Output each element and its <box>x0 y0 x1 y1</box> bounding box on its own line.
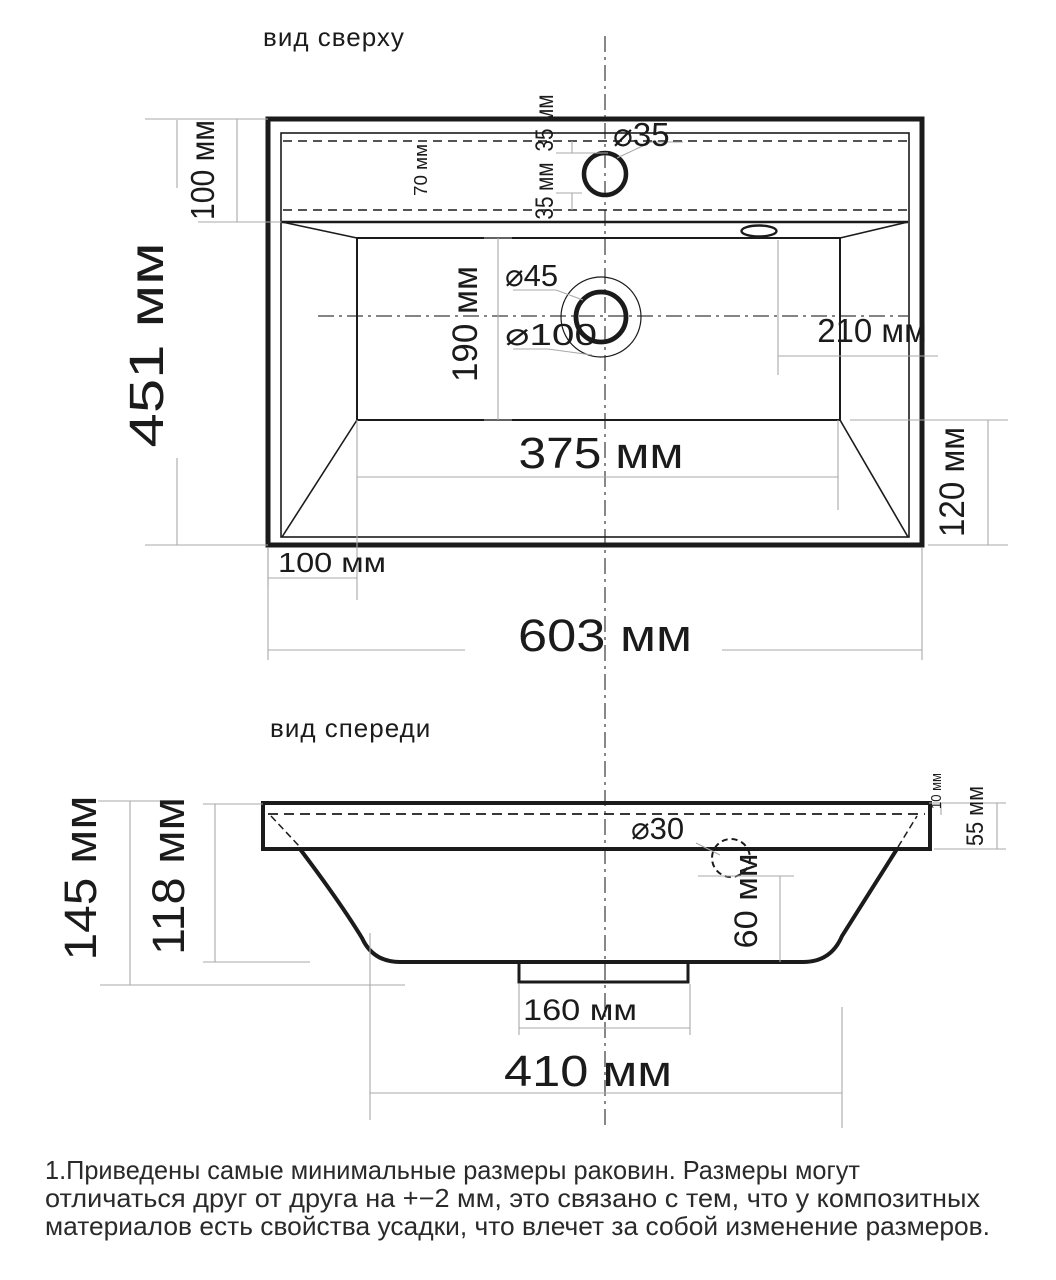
dim-label-overflow-to-bottom: 60 мм <box>728 854 764 949</box>
dim-label-faucet-hole-diameter: ⌀35 <box>613 116 670 153</box>
dim-label-front-corner-offset: 100 мм <box>278 547 386 578</box>
dim-label-overall-width: 603 мм <box>518 610 692 661</box>
dim-label-rim-top-thickness: 10 мм <box>928 773 945 809</box>
dim-label-ledge-inner-depth: 70 мм <box>411 144 431 196</box>
dim-label-back-ledge: 100 мм <box>184 120 221 220</box>
dim-label-side-slope-width: 120 мм <box>933 427 972 537</box>
footnote-line-1: 1.Приведены самые минимальные размеры ра… <box>45 1155 860 1185</box>
front-view-title: вид спереди <box>270 713 431 743</box>
dim-label-bowl-floor-depth: 190 мм <box>446 266 485 382</box>
dim-label-rim-height: 55 мм <box>962 786 989 846</box>
footnote-line-2: отличаться друг от друга на +−2 мм, это … <box>45 1183 980 1213</box>
dim-label-drain-side-offset: 210 мм <box>817 312 927 349</box>
sink-dimension-drawing: вид сверху <box>0 0 1056 1280</box>
drawing-canvas: вид сверху <box>0 0 1056 1280</box>
dim-label-overall-height: 145 мм <box>55 796 106 961</box>
dim-label-flange-width: 160 мм <box>523 994 637 1027</box>
dim-label-drain-recess-diameter: ⌀100 <box>505 317 597 352</box>
dim-label-bowl-height: 118 мм <box>143 797 194 955</box>
dim-label-faucet-offset-lower: 35 мм <box>531 163 559 220</box>
footnote-line-3: материалов есть свойства усадки, что вле… <box>45 1211 990 1241</box>
dim-label-overall-depth: 451 мм <box>121 243 174 448</box>
dim-label-bottom-width: 410 мм <box>504 1047 672 1096</box>
top-view-title: вид сверху <box>263 22 405 52</box>
footnote: 1.Приведены самые минимальные размеры ра… <box>45 1155 990 1241</box>
dim-label-faucet-offset-upper: 35 мм <box>531 95 559 152</box>
dim-label-bowl-floor-width: 375 мм <box>519 429 684 478</box>
dim-label-overflow-diameter: ⌀30 <box>631 811 684 846</box>
dim-label-drain-hole-diameter: ⌀45 <box>505 258 558 293</box>
